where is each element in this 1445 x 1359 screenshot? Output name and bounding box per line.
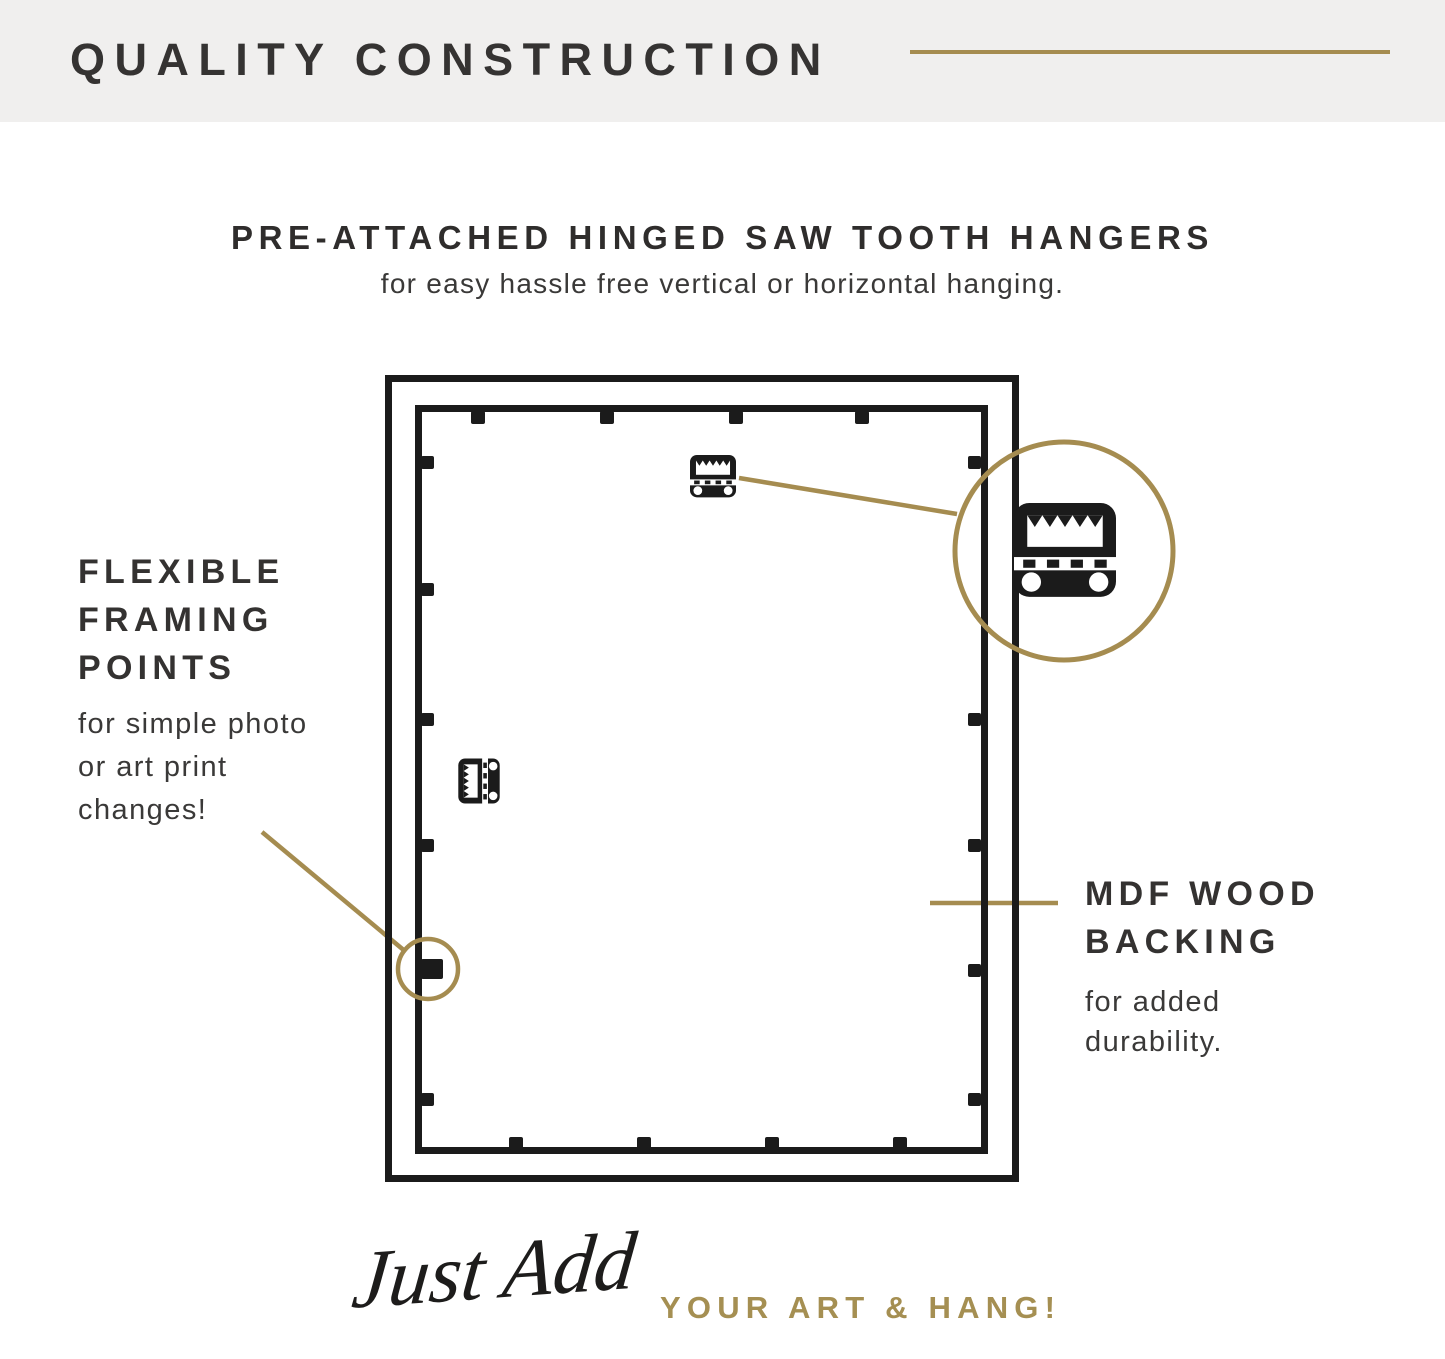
framing-point-tab (855, 411, 869, 424)
framing-point-tab (765, 1137, 779, 1150)
hero-title: PRE-ATTACHED HINGED SAW TOOTH HANGERS (0, 219, 1445, 257)
frame-backing-edge (419, 409, 985, 1151)
quality-construction-infographic: QUALITY CONSTRUCTION PRE-ATTACHED HINGED… (0, 0, 1445, 1359)
callout-flexible-title-line: FRAMING (78, 596, 308, 644)
callout-mdf-wood-backing: MDF WOOD BACKING for added durability. (1085, 870, 1320, 1062)
framing-point-tab (893, 1137, 907, 1150)
sawtooth-hanger-top-icon (690, 455, 736, 497)
callout-mdf-title-line: MDF WOOD (1085, 870, 1320, 918)
header-rule (910, 50, 1390, 54)
callout-mdf-title: MDF WOOD BACKING (1085, 870, 1320, 966)
framing-point-tab (421, 713, 434, 726)
callout-flexible-title-line: POINTS (78, 644, 308, 692)
leader-line-hanger-detail (739, 478, 957, 514)
sawtooth-hanger-detail-icon (1014, 503, 1116, 597)
callout-flexible-body-line: or art print (78, 746, 308, 789)
callout-mdf-body-line: for added (1085, 982, 1320, 1022)
frame-outer-edge (389, 379, 1016, 1179)
framing-point-tab (968, 839, 981, 852)
framing-point-tab (421, 839, 434, 852)
header-band: QUALITY CONSTRUCTION (0, 0, 1445, 122)
framing-point-tab (421, 456, 434, 469)
sawtooth-hanger-side-icon (458, 759, 499, 804)
framing-point-tab (729, 411, 743, 424)
framing-point-tab (421, 1093, 434, 1106)
tagline-script-text: Just Add (348, 1213, 640, 1328)
callout-flexible-body-line: for simple photo (78, 703, 308, 746)
callout-mdf-title-line: BACKING (1085, 918, 1320, 966)
framing-point-tab (471, 411, 485, 424)
callout-mdf-body: for added durability. (1085, 982, 1320, 1062)
callout-mdf-body-line: durability. (1085, 1022, 1320, 1062)
framing-point-tab (637, 1137, 651, 1150)
hanger-detail-magnifier-circle (955, 442, 1173, 660)
callout-flexible-title: FLEXIBLE FRAMING POINTS (78, 548, 308, 692)
tagline-caps-text: YOUR ART & HANG! (660, 1290, 1061, 1326)
flexible-framing-point-tab (421, 959, 443, 979)
callout-flexible-body-line: changes! (78, 789, 308, 832)
callout-flexible-title-line: FLEXIBLE (78, 548, 308, 596)
framing-point-tab (968, 1093, 981, 1106)
leader-line-framing-point (262, 832, 406, 952)
framing-point-tab (968, 964, 981, 977)
framing-point-highlight-circle (398, 939, 458, 999)
callout-flexible-framing-points: FLEXIBLE FRAMING POINTS for simple photo… (78, 548, 308, 832)
framing-point-tab (968, 456, 981, 469)
page-title: QUALITY CONSTRUCTION (70, 34, 831, 86)
framing-point-tab (509, 1137, 523, 1150)
framing-point-tab (421, 583, 434, 596)
hero-subtitle: for easy hassle free vertical or horizon… (0, 268, 1445, 300)
callout-flexible-body: for simple photo or art print changes! (78, 703, 308, 832)
framing-point-tab (968, 713, 981, 726)
framing-point-tab (600, 411, 614, 424)
framing-point-tabs (421, 411, 981, 1150)
